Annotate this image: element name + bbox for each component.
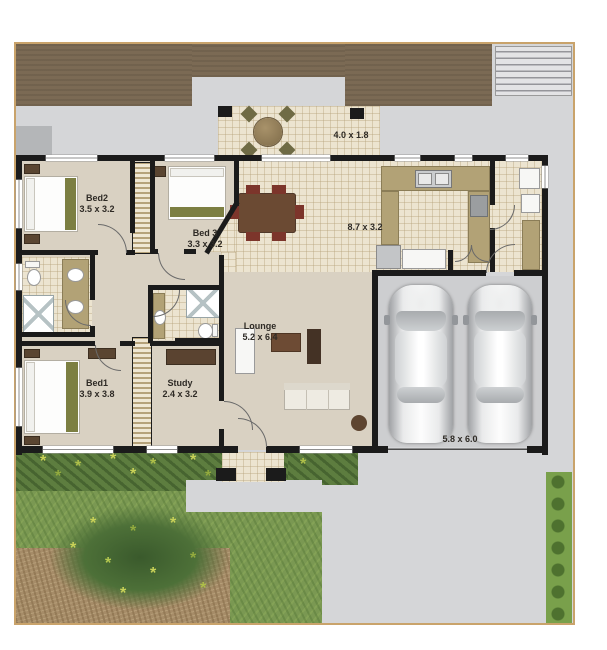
label-patio: 4.0 x 1.8 bbox=[316, 130, 386, 141]
wall-robe-right bbox=[150, 161, 155, 254]
plant-icon bbox=[90, 520, 96, 528]
window bbox=[165, 155, 214, 161]
window bbox=[542, 166, 548, 188]
wall-exterior-right bbox=[542, 155, 548, 455]
window bbox=[43, 446, 113, 453]
plant-icon bbox=[70, 545, 76, 553]
shower bbox=[23, 295, 54, 333]
bed2-nightstand bbox=[24, 164, 40, 174]
rear-deck-right bbox=[345, 44, 492, 106]
car-rear-window bbox=[476, 387, 524, 403]
car-roof bbox=[395, 331, 447, 387]
room-name: Bed1 bbox=[62, 378, 132, 389]
car-windshield bbox=[396, 311, 446, 331]
dining-chair bbox=[272, 232, 286, 241]
plant-icon bbox=[40, 458, 46, 466]
plant-icon bbox=[190, 457, 196, 465]
entry-path bbox=[186, 480, 322, 512]
wall-bed1-top bbox=[22, 341, 95, 346]
laundry-bench bbox=[522, 220, 540, 270]
plant-icon bbox=[200, 585, 206, 593]
room-name: Bed2 bbox=[62, 193, 132, 204]
room-name: Study bbox=[145, 378, 215, 389]
bed3-pillow bbox=[170, 168, 224, 177]
bed3-throw bbox=[170, 207, 224, 217]
wall-bed2-bottom bbox=[126, 250, 135, 255]
concrete-pad bbox=[16, 126, 52, 158]
window bbox=[16, 368, 22, 426]
laundry-tub bbox=[521, 194, 540, 213]
hedge bbox=[546, 472, 572, 623]
room-dims: 5.2 x 6.4 bbox=[230, 332, 290, 343]
plant-icon bbox=[150, 570, 156, 578]
car bbox=[468, 285, 532, 443]
wall-ensuite-bottom bbox=[148, 338, 153, 343]
wall-garage-top bbox=[372, 270, 486, 276]
ensuite-toilet-bowl bbox=[198, 323, 213, 339]
room-dims: 3.5 x 3.2 bbox=[62, 204, 132, 215]
sideboard bbox=[307, 329, 321, 364]
plant-icon bbox=[130, 528, 136, 536]
wall-laundry-left bbox=[490, 161, 495, 205]
kitchen-sink-bowl bbox=[435, 173, 449, 185]
room-dims: 3.3 x 3.2 bbox=[170, 239, 240, 250]
car-windshield bbox=[475, 311, 525, 331]
room-dims: 2.4 x 3.2 bbox=[145, 389, 215, 400]
toilet-tank bbox=[25, 261, 40, 268]
dining-chair bbox=[246, 232, 260, 241]
car-mirror bbox=[452, 315, 458, 325]
dining-chair bbox=[295, 205, 304, 219]
rear-deck-middle bbox=[192, 44, 345, 77]
robe-bed2-bed3 bbox=[132, 162, 152, 254]
label-bed3: Bed 3 3.3 x 3.2 bbox=[170, 228, 240, 250]
plant-icon bbox=[105, 560, 111, 568]
room-dims: 4.0 x 1.8 bbox=[316, 130, 386, 141]
bed2-pillow bbox=[26, 178, 35, 230]
window bbox=[16, 264, 22, 290]
plant-icon bbox=[150, 461, 156, 469]
plant-icon bbox=[300, 461, 306, 469]
car-mirror bbox=[531, 315, 537, 325]
deck-steps bbox=[495, 46, 572, 96]
bed2-nightstand bbox=[24, 234, 40, 244]
car-rear-window bbox=[397, 387, 445, 403]
room-dims: 3.9 x 3.8 bbox=[62, 389, 132, 400]
plant-icon bbox=[75, 463, 81, 471]
sofa-back bbox=[284, 383, 350, 390]
label-study: Study 2.4 x 3.2 bbox=[145, 378, 215, 400]
kitchen-sink-bowl bbox=[418, 173, 432, 185]
car bbox=[389, 285, 453, 443]
window bbox=[395, 155, 420, 161]
side-table bbox=[351, 415, 367, 431]
wall-study-right bbox=[219, 429, 224, 451]
wall-hall-lounge bbox=[219, 255, 224, 345]
label-bed1: Bed1 3.9 x 3.8 bbox=[62, 378, 132, 400]
dining-chair bbox=[272, 185, 286, 194]
window bbox=[300, 446, 352, 453]
wall-bath-bottom bbox=[22, 332, 95, 337]
kitchen-peninsula bbox=[381, 191, 399, 245]
plant-icon bbox=[130, 471, 136, 479]
window bbox=[16, 180, 22, 228]
ensuite-shower bbox=[186, 288, 220, 318]
garage-door bbox=[388, 447, 527, 452]
room-name: Bed 3 bbox=[170, 228, 240, 239]
dining-table bbox=[238, 193, 296, 233]
bathroom-basin bbox=[67, 268, 84, 282]
bed1-pillow bbox=[26, 362, 35, 432]
porch-post bbox=[266, 468, 286, 481]
wall-garage-bottom bbox=[378, 446, 388, 453]
dining-chair bbox=[246, 185, 260, 194]
wall-bath-right bbox=[90, 255, 95, 300]
car-mirror bbox=[463, 315, 469, 325]
kitchen-bench-low bbox=[402, 249, 446, 269]
washing-machine bbox=[519, 168, 540, 189]
sofa-cushion-divider bbox=[328, 390, 329, 410]
label-meals-kitchen: 8.7 x 3.2 bbox=[330, 222, 400, 233]
wall-ensuite-bottom bbox=[175, 338, 224, 343]
window bbox=[46, 155, 97, 161]
wall-garage-left bbox=[372, 270, 378, 453]
floor-plan: Bed2 3.5 x 3.2 Bed 3 3.3 x 3.2 Bed1 3.9 … bbox=[0, 0, 607, 650]
window bbox=[506, 155, 528, 161]
rear-deck bbox=[16, 44, 192, 106]
sofa-cushion-divider bbox=[306, 390, 307, 410]
wall-bed3-bottom bbox=[151, 249, 158, 254]
wall-garage-top bbox=[514, 270, 548, 276]
wall-bed1-top bbox=[120, 341, 135, 346]
room-dims: 5.8 x 6.0 bbox=[425, 434, 495, 445]
fridge bbox=[376, 245, 401, 269]
cooktop bbox=[470, 195, 488, 217]
patio-table bbox=[254, 118, 282, 146]
bed1-nightstand bbox=[24, 349, 40, 358]
plant-icon bbox=[190, 555, 196, 563]
window bbox=[147, 446, 177, 453]
room-dims: 8.7 x 3.2 bbox=[330, 222, 400, 233]
car-mirror bbox=[384, 315, 390, 325]
car-roof bbox=[474, 331, 526, 387]
wall-hall-stub bbox=[448, 250, 453, 276]
wall-garage-bottom bbox=[527, 446, 548, 453]
room-name: Lounge bbox=[230, 321, 290, 332]
patio-post bbox=[218, 106, 232, 117]
wall-bed2-bottom bbox=[22, 250, 98, 255]
window bbox=[455, 155, 472, 161]
bed1-nightstand bbox=[24, 436, 40, 445]
label-bed2: Bed2 3.5 x 3.2 bbox=[62, 193, 132, 215]
wall-study-right bbox=[219, 341, 224, 401]
label-garage: 5.8 x 6.0 bbox=[425, 434, 495, 445]
patio-post bbox=[350, 108, 364, 119]
plant-icon bbox=[110, 456, 116, 464]
porch-post bbox=[216, 468, 236, 481]
toilet-bowl bbox=[27, 269, 41, 286]
study-desk bbox=[166, 349, 216, 365]
sliding-door bbox=[262, 155, 330, 161]
plant-icon bbox=[170, 520, 176, 528]
plant-icon bbox=[55, 473, 61, 481]
label-lounge: Lounge 5.2 x 6.4 bbox=[230, 321, 290, 343]
plant-icon bbox=[120, 590, 126, 598]
